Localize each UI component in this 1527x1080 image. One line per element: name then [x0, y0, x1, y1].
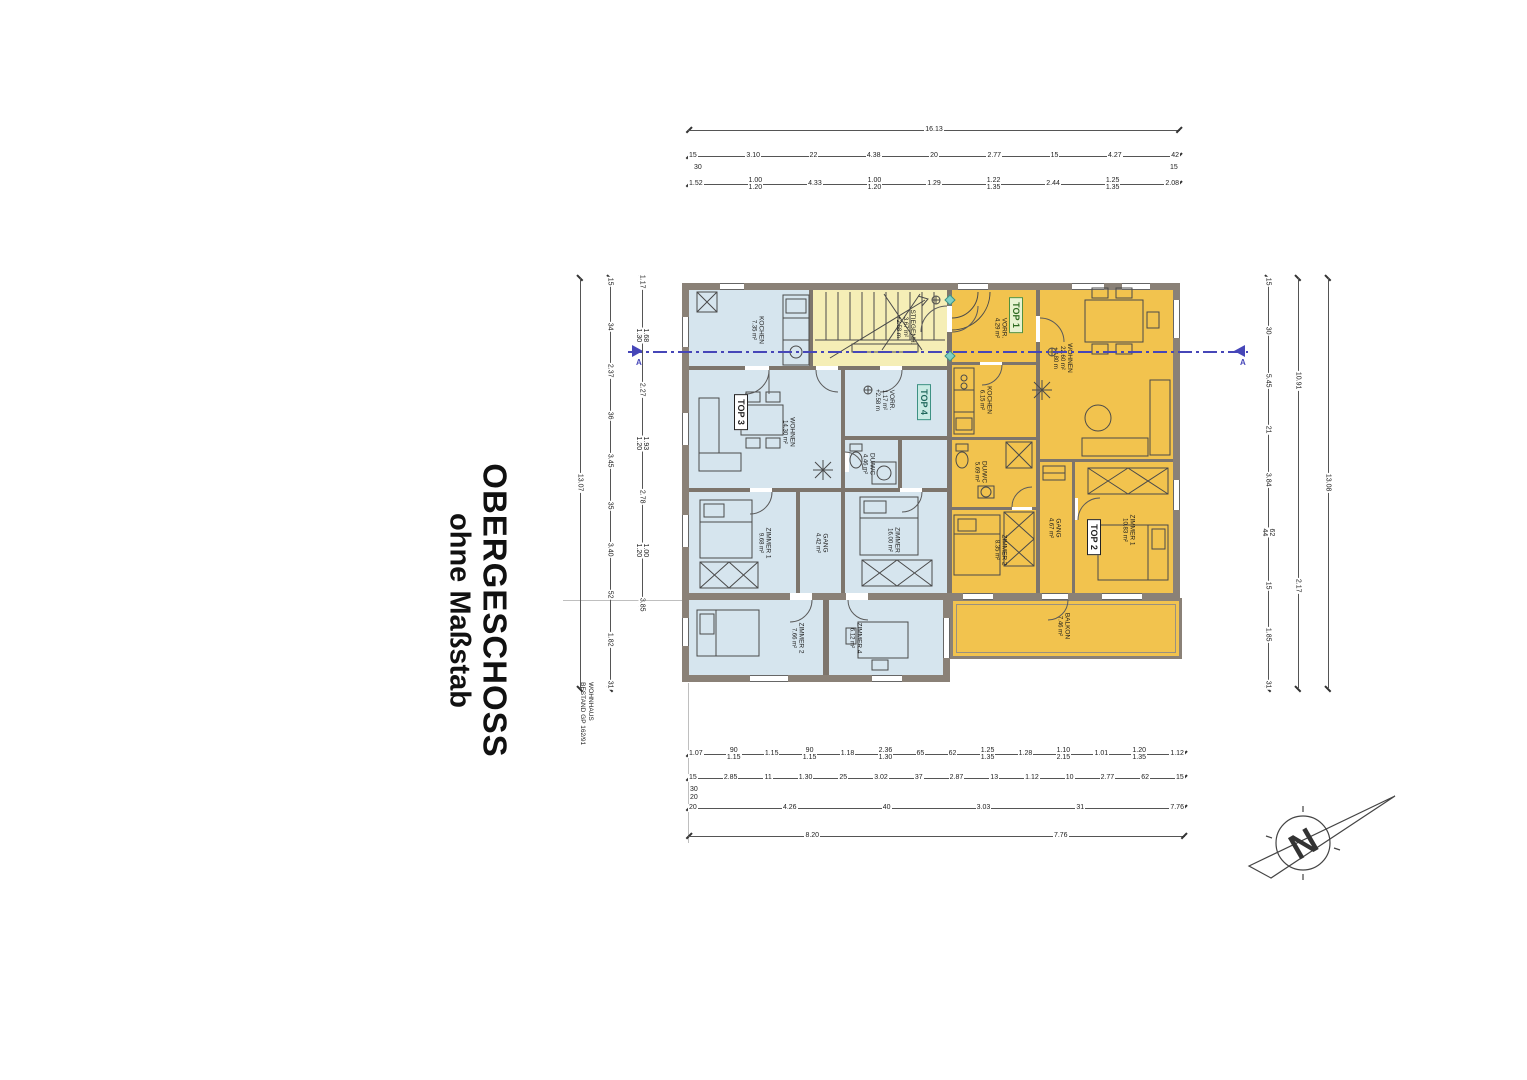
stairs-icon [815, 292, 945, 358]
dim-sub-label: 30 [694, 164, 702, 171]
dim-chain-left-inner: 1.171.681.302.271.931.202.781.001.203.85 [636, 278, 648, 608]
room-label-wing-zimmer4: ZIMMER 46.12 m² [848, 622, 863, 653]
room-label-t1-vorr: VORR.4.29 m² [993, 318, 1008, 339]
room-label-t3-gang: GANG4.42 m² [814, 533, 829, 553]
room-label-t1-kochen: KOCHEN6.15 m² [978, 386, 993, 414]
section-marker-right-label: A [1240, 358, 1246, 367]
north-arrow-icon: N [1243, 788, 1403, 888]
apartment-label-top3: TOP 3 [734, 394, 748, 430]
dim-chain-bottom-row3: 204.26403.03317.76 [688, 802, 1185, 814]
room-label-t1-wohnen: WOHNEN22.60 m²+2.80 m [1051, 343, 1073, 373]
dim-chain-left-mid: 15342.37363.45353.40521.8231 [604, 278, 616, 688]
title-line1: OBERGESCHOSS [476, 461, 514, 761]
dim-chain-right-mid: 10.912.17 [1292, 278, 1304, 688]
dim-chain-top-row3: 1.521.001.204.331.001.201.291.221.352.44… [688, 178, 1180, 190]
note-line2: BESTAND GP 162/91 [578, 682, 586, 782]
room-label-t3-wohnen: WOHNEN14.30 m² [781, 417, 796, 447]
shelf-t2-gang [1043, 466, 1065, 480]
room-label-t1-duwc: DU/WC5.69 m² [973, 461, 988, 483]
note-line1: WOHNHAUS [586, 682, 594, 782]
dim-chain-bottom-row2: 152.85111.30253.02372.87131.12102.776215 [688, 772, 1185, 784]
room-label-t3-kochen: KOCHEN7.35 m² [750, 316, 765, 344]
door-arcs [745, 306, 1100, 622]
section-line [628, 351, 1248, 353]
section-marker-right-icon [1234, 345, 1245, 357]
page-title: OBERGESCHOSS ohne Maßstab [443, 461, 514, 761]
dim-chain-right-overall: 13.08 [1322, 278, 1334, 688]
apartment-label-top4: TOP 4 [917, 384, 931, 420]
dim-chain-right-inner: 15305.45213.846244151.8531 [1262, 278, 1274, 688]
dim-sub-label: 15 [1170, 164, 1178, 171]
floorplan-canvas: OBERGESCHOSS ohne Maßstab WOHNHAUS BESTA… [0, 0, 1527, 1080]
sofa-table-t3 [699, 392, 833, 480]
apartment-label-top1: TOP 1 [1009, 297, 1023, 333]
room-label-balkon: BALKON7.46 m² [1056, 613, 1071, 639]
kitchen-counter-t1 [954, 368, 974, 434]
dining-set-t1 [1085, 288, 1159, 354]
room-label-t3-zimmer1: ZIMMER 19.68 m² [757, 527, 772, 558]
toilet-bath-t1 [956, 442, 1032, 498]
room-label-t1-zimmer2: ZIMMER 28.35 m² [993, 534, 1008, 565]
room-label-t2-gang: GANG4.67 m² [1047, 518, 1062, 538]
bed-wing-zimmer2 [697, 610, 759, 656]
dim-sub-label: 30 [690, 786, 698, 793]
room-label-stairwell: STIEGENH.3.67 m²+2.58 m [894, 309, 916, 344]
dim-sub-label: 20 [690, 794, 698, 801]
guide-line-vertical [688, 683, 689, 843]
dim-chain-left-overall: 13.07 [574, 278, 586, 688]
room-label-t4-vorr: VORR.1.17 m²+2.58 m [873, 389, 895, 411]
lamp-t1 [1032, 380, 1052, 400]
room-label-t2-zimmer1: ZIMMER 110.83 m² [1121, 514, 1136, 545]
sofa-t1 [1082, 380, 1170, 456]
apartment-label-top2: TOP 2 [1087, 519, 1101, 555]
level-mark-t4 [864, 386, 872, 394]
room-label-t4-duwc: DU/WC4.46 m² [861, 453, 876, 475]
dim-chain-top-overall: 16.13 [688, 124, 1180, 136]
bed-t3-zimmer1 [700, 500, 758, 588]
room-label-t4-zimmer: ZIMMER16.00 m² [886, 527, 901, 553]
dim-chain-bottom-overall: 8.207.76 [688, 830, 1185, 842]
title-line2: ohne Maßstab [443, 461, 476, 761]
room-label-wing-zimmer2: ZIMMER 27.66 m² [790, 622, 805, 653]
dim-chain-bottom-row1: 1.07901.151.15901.151.182.361.3065621.25… [688, 748, 1185, 760]
dim-chain-top-row2: 153.10224.38202.77154.2742 [688, 150, 1180, 162]
plan-note: WOHNHAUS BESTAND GP 162/91 [578, 682, 594, 782]
